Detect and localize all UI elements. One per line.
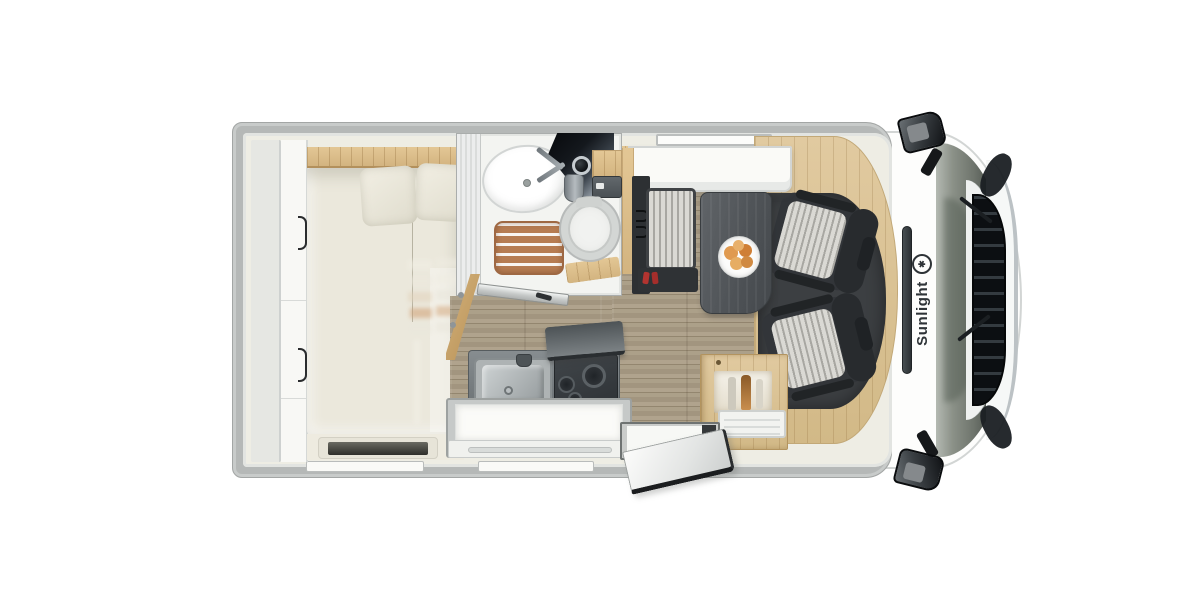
bed-step-recess xyxy=(318,437,438,459)
heater-button xyxy=(596,183,604,189)
spotlight-knob xyxy=(572,156,591,175)
step-line xyxy=(724,426,780,428)
fruit-plate xyxy=(718,236,760,278)
mirror-arm xyxy=(920,147,944,177)
brand-wordmark: Sunlight xyxy=(914,281,931,346)
pillow-left xyxy=(359,165,418,227)
wardrobe-seam xyxy=(281,300,306,301)
wardrobe-handle-bottom xyxy=(298,348,307,382)
motorhome-floorplan: Sunlight ✱ xyxy=(0,0,1200,600)
ladder-rung xyxy=(408,324,432,334)
ladder-rung xyxy=(410,308,432,318)
entry-step-stack xyxy=(718,410,786,438)
water-heater-box xyxy=(592,176,622,198)
side-window-rear xyxy=(306,461,424,472)
fruit xyxy=(733,240,744,251)
bottle xyxy=(728,377,736,410)
fruit xyxy=(741,256,753,268)
side-mirror-bottom xyxy=(894,428,952,492)
basin-drain xyxy=(523,179,531,187)
hob-burner xyxy=(582,364,606,388)
side-window-mid xyxy=(478,461,594,472)
ladder-rail xyxy=(414,340,420,424)
seatbelt-buckle xyxy=(651,272,658,285)
ladder-rung xyxy=(408,292,432,302)
step-line xyxy=(724,433,780,435)
dinette-bench-cushion xyxy=(646,188,696,270)
mirror-glass xyxy=(903,462,927,483)
cabinet-vent-hole xyxy=(716,360,721,365)
hob-burner xyxy=(558,376,575,393)
kitchen-tap xyxy=(516,354,532,367)
partition-hinge xyxy=(450,322,456,328)
wardrobe-handle-top xyxy=(298,216,307,250)
bottle-niche xyxy=(714,371,772,413)
front-grille xyxy=(972,194,1006,406)
cab-roof-vent xyxy=(902,226,912,374)
overhead-locker xyxy=(626,146,792,192)
hob-glass-lid-open xyxy=(545,321,626,362)
mirror-glass xyxy=(906,122,930,143)
door-handle xyxy=(535,292,552,301)
wardrobe-seam xyxy=(281,398,306,399)
shower-wall-panel xyxy=(457,134,481,294)
side-mirror-top xyxy=(896,112,954,176)
wardrobe-front xyxy=(281,140,308,462)
sunlight-sun-logo-icon: ✱ xyxy=(912,254,932,274)
bottle xyxy=(741,375,751,410)
drawer-handle-groove xyxy=(468,447,612,453)
partition-hinge xyxy=(458,292,464,298)
bottle xyxy=(756,379,763,409)
shower-teak-grate xyxy=(494,221,564,275)
washroom-wood-shelf xyxy=(592,150,622,178)
brand-lockup: Sunlight ✱ xyxy=(913,234,931,366)
drawer-interior xyxy=(455,404,623,442)
bed-step-recess-inner xyxy=(328,442,428,455)
toilet-lid-hinge xyxy=(576,196,602,207)
step-line xyxy=(724,419,780,421)
sink-drain xyxy=(504,386,513,395)
rear-garage-shelf xyxy=(251,140,281,462)
ladder-rung xyxy=(408,276,432,286)
ladder-rung xyxy=(408,260,432,270)
mirror-head xyxy=(896,109,947,155)
